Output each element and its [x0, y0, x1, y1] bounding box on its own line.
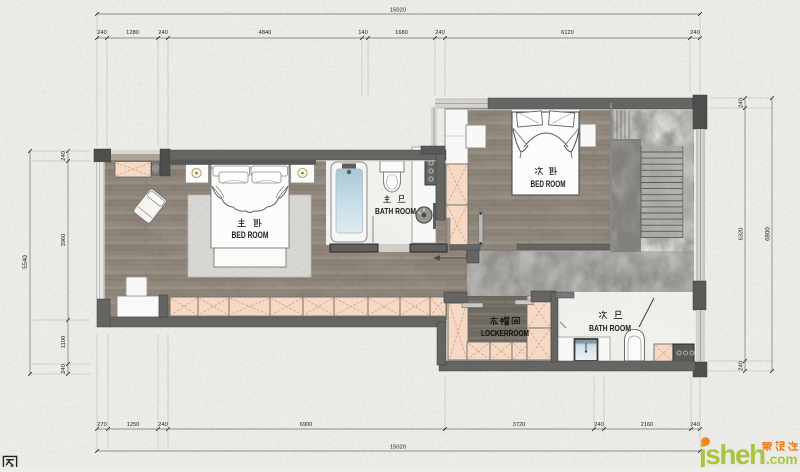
svg-text:4840: 4840	[259, 30, 272, 36]
svg-text:240: 240	[158, 422, 168, 428]
svg-text:240: 240	[158, 30, 168, 36]
svg-text:6320: 6320	[739, 228, 745, 241]
svg-text:3960: 3960	[61, 234, 67, 247]
svg-text:240: 240	[61, 151, 67, 161]
svg-text:240: 240	[435, 30, 445, 36]
svg-text:240: 240	[739, 361, 745, 371]
svg-text:3720: 3720	[513, 422, 526, 428]
svg-text:240: 240	[97, 30, 107, 36]
svg-text:BATH ROOM: BATH ROOM	[375, 206, 416, 216]
svg-text:15020: 15020	[390, 8, 406, 14]
svg-text:BATH ROOM: BATH ROOM	[589, 323, 631, 333]
svg-text:140: 140	[358, 30, 368, 36]
svg-text:240: 240	[61, 364, 67, 374]
svg-text:1100: 1100	[61, 336, 67, 348]
svg-text:LOCKERROOM: LOCKERROOM	[481, 329, 529, 338]
svg-text:5540: 5540	[22, 255, 29, 269]
svg-text:BED ROOM: BED ROOM	[232, 230, 269, 240]
svg-text:1680: 1680	[395, 30, 408, 36]
svg-text:1280: 1280	[126, 30, 139, 36]
svg-text:15020: 15020	[390, 445, 406, 451]
svg-text:1250: 1250	[127, 422, 140, 428]
svg-text:240: 240	[594, 422, 604, 428]
svg-text:240: 240	[739, 98, 745, 108]
svg-text:6120: 6120	[561, 30, 574, 36]
svg-text:2160: 2160	[641, 422, 654, 428]
svg-text:270: 270	[97, 422, 107, 428]
svg-text:BED ROOM: BED ROOM	[531, 179, 566, 189]
svg-text:6800: 6800	[765, 227, 772, 241]
svg-text:240: 240	[690, 30, 700, 36]
svg-text:6900: 6900	[300, 422, 313, 428]
svg-text:.com: .com	[766, 452, 798, 467]
svg-text:240: 240	[690, 422, 700, 428]
